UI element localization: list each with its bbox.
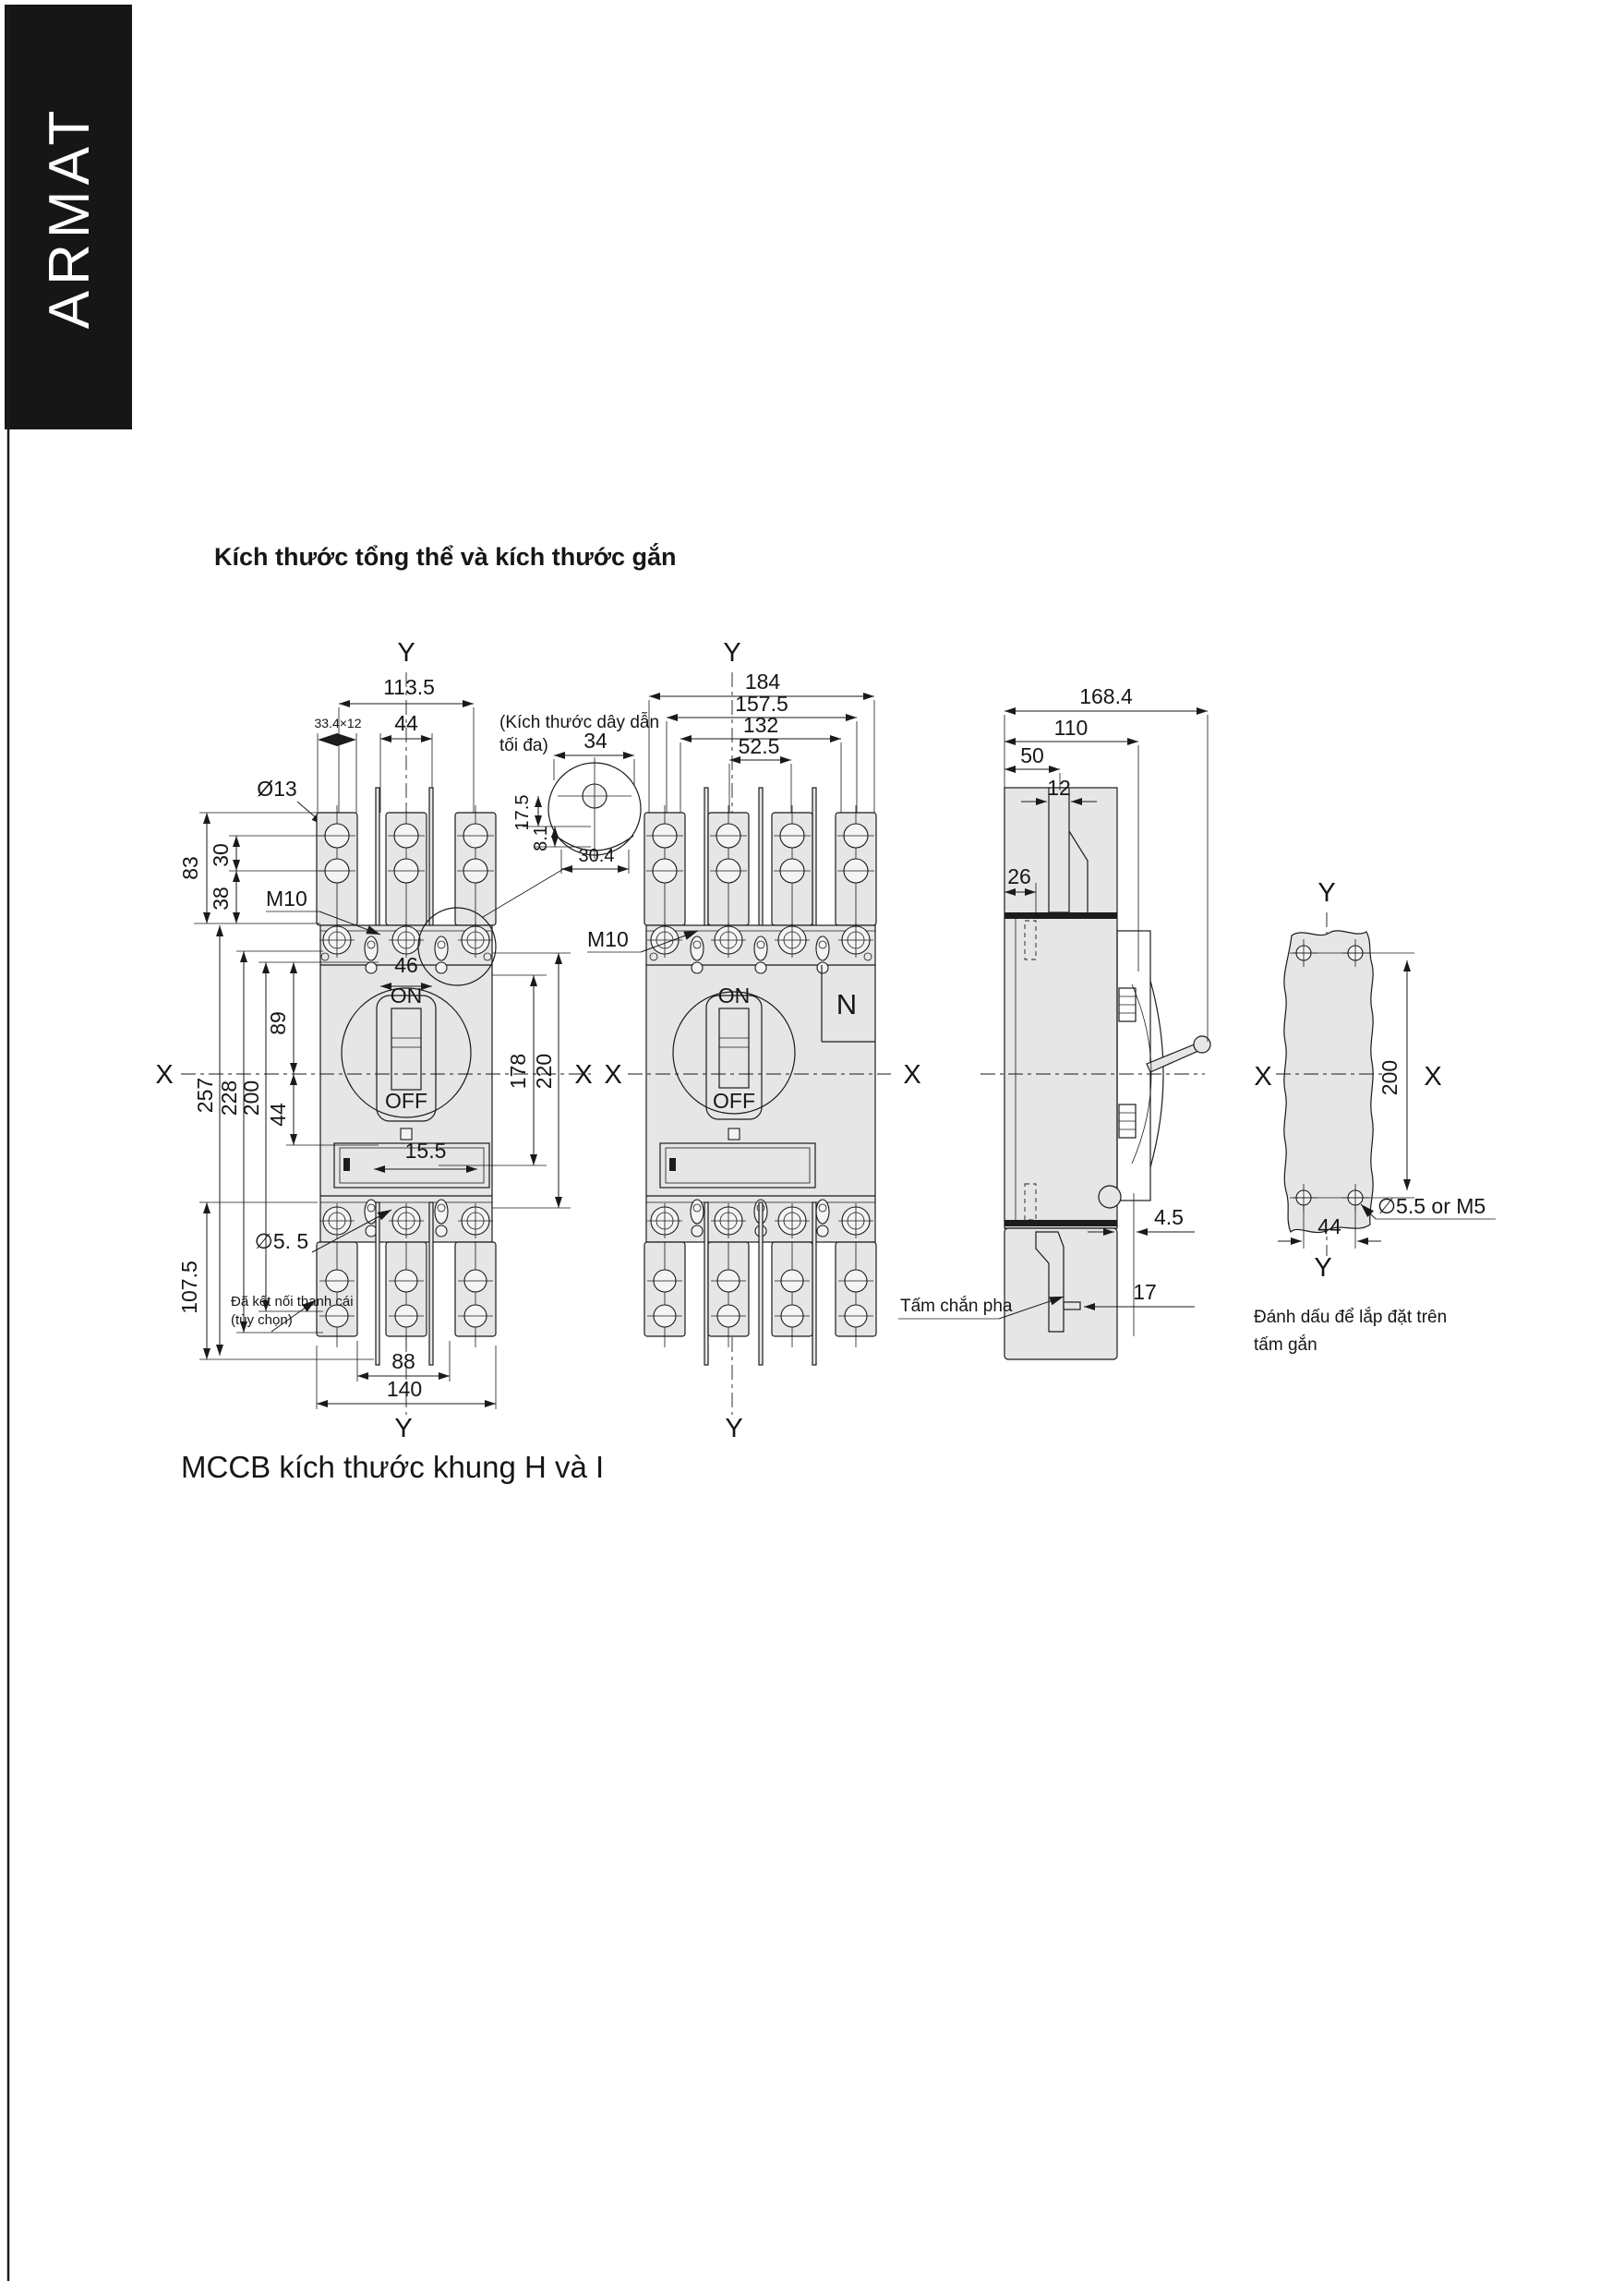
note-phase-barrier: Tấm chắn pha	[900, 1296, 1013, 1316]
conductor-size-inset: (Kích thước dây dẫn tối đa) 34 17.5 8.1 …	[499, 712, 659, 874]
front-view-3pole: Y 113.5 44 33.4×12 Ø13	[155, 638, 592, 1443]
dim-depth-168-4: 168.4	[1079, 684, 1133, 708]
axis-x-left-label: X	[155, 1060, 173, 1090]
dim-depth-50: 50	[1020, 743, 1044, 767]
switch-off-label: OFF	[385, 1089, 427, 1113]
dim-handle-width: 46	[394, 953, 418, 977]
axis-y-top-label: Y	[397, 638, 415, 668]
dim-plate-44: 44	[1317, 1214, 1341, 1238]
dim-height-220: 220	[532, 1054, 556, 1089]
dim-total-height: 257	[193, 1078, 217, 1113]
dim-lug-height: 83	[178, 856, 202, 880]
note-conductor-line2: tối đa)	[499, 736, 548, 755]
dim-strap-width-12: 12	[1047, 776, 1071, 800]
axis-y-top-label: Y	[723, 638, 740, 668]
dim-conductor-30-4: 30.4	[579, 846, 615, 866]
dim-gap-4-5: 4.5	[1154, 1205, 1184, 1229]
dim-terminal-screw-4p: M10	[587, 927, 629, 951]
neutral-pole-label: N	[836, 988, 857, 1020]
note-mounting-line2: tấm gắn	[1254, 1334, 1317, 1355]
dim-mount-pitch: 200	[239, 1080, 263, 1116]
dim-pole-pitch: 44	[394, 711, 418, 735]
dim-overall-width-4p: 184	[745, 670, 781, 694]
dim-busbar-length: 107.5	[177, 1261, 201, 1314]
axis-x-right-label: X	[1424, 1062, 1441, 1092]
note-busbar-line2: (tùy chọn)	[231, 1312, 293, 1328]
dim-depth-26: 26	[1007, 864, 1031, 888]
page-title: Kích thước tổng thể và kích thước gắn	[214, 542, 677, 571]
dim-hole-spacing: 30	[209, 843, 233, 867]
dim-conductor-8-1: 8.1	[531, 826, 551, 851]
dim-mount-hole: ∅5. 5	[255, 1229, 308, 1253]
dim-barrier-17: 17	[1133, 1280, 1157, 1304]
dim-bottom-140: 140	[387, 1377, 422, 1401]
axis-x-right-label: X	[903, 1060, 920, 1090]
axis-y-bottom-label: Y	[1314, 1253, 1331, 1283]
side-view: 168.4 110 50 12 26 4.5 17 Tấm chắn pha	[898, 684, 1210, 1359]
dim-handle-offset: 15.5	[405, 1139, 447, 1163]
dim-conductor-17-5: 17.5	[512, 795, 533, 831]
dim-terminal-screw: M10	[266, 887, 307, 911]
dim-plate-hole: ∅5.5 or M5	[1377, 1194, 1486, 1218]
axis-y-bottom-label: Y	[725, 1414, 742, 1443]
axis-x-right-label: X	[574, 1060, 592, 1090]
brand-banner: ARMAT	[5, 5, 132, 2281]
switch-on-label: ON	[391, 984, 423, 1008]
note-busbar-line1: Đã kết nối thanh cái	[231, 1294, 354, 1309]
axis-y-bottom-label: Y	[394, 1414, 412, 1443]
dim-bottom-88: 88	[391, 1349, 415, 1373]
axis-x-left-label: X	[604, 1060, 621, 1090]
dim-width-52-5: 52.5	[739, 734, 780, 758]
dim-terminal-hole: Ø13	[257, 777, 296, 801]
page-caption: MCCB kích thước khung H và I	[181, 1450, 604, 1484]
note-mounting-line1: Đánh dấu để lắp đặt trên	[1254, 1307, 1447, 1327]
switch-off-label: OFF	[713, 1089, 755, 1113]
dim-overall-width: 113.5	[383, 675, 435, 699]
dim-conductor-34: 34	[583, 729, 607, 753]
dim-height-178: 178	[506, 1054, 530, 1089]
drawing-canvas: ARMAT Kích thước tổng thể và kích thước …	[0, 0, 1624, 2293]
axis-x-left-label: X	[1254, 1062, 1271, 1092]
datasheet-page: ARMAT Kích thước tổng thể và kích thước …	[0, 0, 1624, 2293]
dim-terminal-slot: 33.4×12	[315, 716, 362, 730]
front-view-4pole: Y 184 157.5 132 52.5 M10 N	[587, 638, 921, 1443]
dim-plate-pitch-200: 200	[1377, 1060, 1401, 1095]
dim-hole-to-body: 38	[209, 887, 233, 911]
dim-height-228: 228	[217, 1080, 241, 1116]
dim-depth-110: 110	[1054, 716, 1089, 740]
axis-y-top-label: Y	[1317, 878, 1335, 908]
note-conductor-line1: (Kích thước dây dẫn	[499, 712, 659, 732]
brand-logo: ARMAT	[38, 105, 102, 329]
dim-height-44: 44	[266, 1103, 290, 1127]
dim-height-89: 89	[266, 1011, 290, 1035]
switch-on-label: ON	[718, 984, 751, 1008]
mounting-plate-view: Y 200 X X ∅5.5 or M5 44 Y Đánh dấu để lắ…	[1254, 878, 1496, 1355]
